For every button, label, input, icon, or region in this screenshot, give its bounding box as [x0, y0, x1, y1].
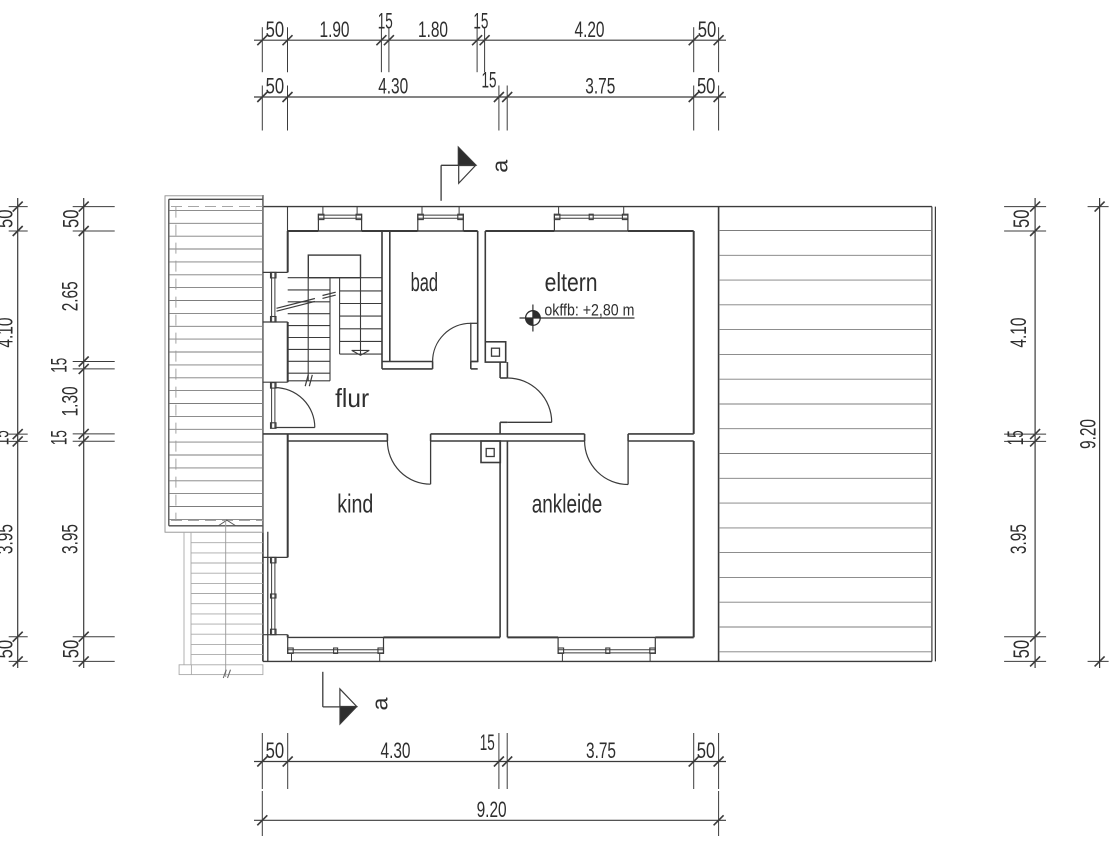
svg-text:4.10: 4.10 — [0, 318, 18, 348]
svg-text:4.20: 4.20 — [575, 17, 605, 42]
svg-text:50: 50 — [266, 17, 285, 42]
svg-text:a: a — [487, 159, 512, 173]
svg-text:9.20: 9.20 — [477, 797, 507, 822]
svg-text:ankleide: ankleide — [532, 488, 603, 518]
svg-text:9.20: 9.20 — [1075, 419, 1100, 449]
svg-text:15: 15 — [482, 68, 497, 93]
svg-text:2.65: 2.65 — [58, 281, 83, 311]
svg-text:4.10: 4.10 — [1006, 318, 1031, 348]
svg-text:4.30: 4.30 — [378, 74, 408, 99]
svg-text:3.95: 3.95 — [58, 524, 83, 554]
svg-text:bad: bad — [411, 267, 439, 297]
svg-text:50: 50 — [0, 210, 18, 229]
svg-text:3.75: 3.75 — [585, 74, 615, 99]
svg-text:15: 15 — [47, 358, 72, 373]
svg-text:50: 50 — [1009, 210, 1034, 229]
svg-text:50: 50 — [1009, 640, 1034, 659]
svg-text:15: 15 — [378, 9, 393, 34]
svg-text:1.30: 1.30 — [58, 386, 83, 416]
svg-text:15: 15 — [1003, 430, 1028, 445]
svg-text:50: 50 — [698, 17, 717, 42]
svg-text:50: 50 — [697, 74, 716, 99]
svg-text:50: 50 — [697, 738, 716, 763]
svg-text:3.95: 3.95 — [1006, 524, 1031, 554]
svg-text:50: 50 — [59, 210, 84, 229]
svg-text:50: 50 — [266, 738, 285, 763]
svg-text:1.90: 1.90 — [320, 17, 350, 42]
svg-text:3.75: 3.75 — [586, 738, 616, 763]
svg-text:15: 15 — [473, 9, 488, 34]
svg-text:okffb: +2,80 m: okffb: +2,80 m — [544, 301, 634, 320]
svg-text:15: 15 — [480, 730, 495, 755]
svg-text:50: 50 — [59, 640, 84, 659]
svg-text:50: 50 — [266, 74, 285, 99]
svg-text:4.30: 4.30 — [381, 738, 411, 763]
svg-text:flur: flur — [335, 383, 369, 413]
svg-text:50: 50 — [0, 640, 18, 659]
svg-text:a: a — [367, 697, 392, 711]
svg-text:3.95: 3.95 — [0, 524, 18, 554]
svg-text:kind: kind — [337, 488, 373, 518]
svg-text:15: 15 — [47, 430, 72, 445]
svg-text:15: 15 — [0, 430, 14, 445]
svg-text:eltern: eltern — [545, 267, 598, 297]
svg-text:1.80: 1.80 — [418, 17, 448, 42]
